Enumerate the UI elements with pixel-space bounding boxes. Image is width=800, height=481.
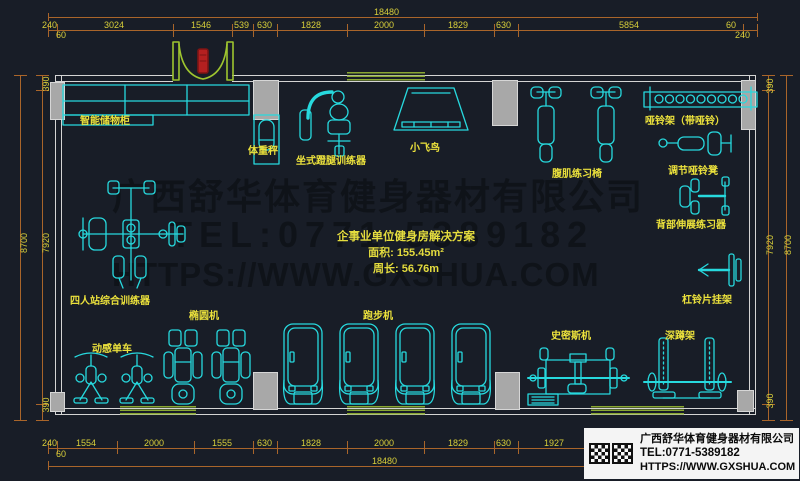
company-name: 广西舒华体育健身器材有限公司 [640, 433, 795, 447]
dim-line-top-segments [48, 30, 757, 31]
dim-top-7: 1829 [448, 20, 468, 30]
elliptical-icon [210, 328, 252, 408]
dim-tick [277, 441, 278, 454]
dim-top-6: 2000 [374, 20, 394, 30]
dim-tick [253, 24, 254, 37]
dim-right-390-bottom: 390 [765, 384, 775, 418]
dim-tick [14, 420, 27, 421]
label-plate-rack: 杠铃片挂架 [682, 291, 732, 306]
company-info-box: 广西舒华体育健身器材有限公司 TEL:0771-5389182 HTTPS://… [584, 428, 799, 479]
dim-top-8: 630 [496, 20, 511, 30]
label-dumbbell-rack: 哑铃架（带哑铃） [645, 112, 725, 127]
dim-tick [518, 441, 519, 454]
dim-bottom-total: 18480 [372, 456, 397, 466]
label-ab-bench: 腹肌练习椅 [552, 165, 602, 180]
solution-area: 面积: 155.45m² [300, 244, 512, 260]
dim-bottom-minor: 60 [56, 449, 66, 459]
dim-tick [424, 24, 425, 37]
dim-bottom-7: 1829 [448, 438, 468, 448]
dim-left-7920: 7920 [41, 226, 51, 260]
dim-tick [14, 75, 27, 76]
company-tel: TEL:0771-5389182 [640, 446, 795, 460]
column [495, 372, 520, 410]
seated-leg-press-icon [298, 84, 358, 158]
dim-bottom-5: 1828 [301, 438, 321, 448]
dim-top-minor-right: 240 [735, 30, 750, 40]
qr-code-icon [589, 443, 610, 464]
dim-top-total: 18480 [374, 7, 399, 17]
dim-right-7920: 7920 [765, 228, 775, 262]
ab-bench-icon [528, 84, 564, 168]
squat-rack-icon [643, 336, 733, 404]
dim-right-8700: 8700 [783, 228, 793, 262]
column [492, 80, 518, 126]
dim-tick [347, 24, 348, 37]
solution-text-block: 企事业单位健身房解决方案 面积: 155.45m² 周长: 56.76m [300, 228, 512, 276]
spin-bike-icon [116, 348, 158, 406]
elliptical-icon [162, 328, 204, 408]
dim-top-minor-left: 60 [56, 30, 66, 40]
treadmill-icon [394, 322, 438, 410]
dim-tick [780, 75, 793, 76]
double-door-icon [166, 40, 240, 84]
ab-bench-icon [588, 84, 624, 168]
label-leg-press: 坐式蹬腿训练器 [296, 152, 366, 167]
label-spin-bike: 动感单车 [92, 340, 132, 355]
label-back-extension: 背部伸展练习器 [656, 216, 726, 231]
solution-perimeter: 周长: 56.76m [300, 260, 512, 276]
treadmill-icon [338, 322, 382, 410]
fly-machine-icon [392, 84, 470, 136]
dim-top-5: 1828 [301, 20, 321, 30]
wall-top-left [55, 75, 173, 82]
dim-top-3: 539 [234, 20, 249, 30]
plate-rack-icon [696, 250, 742, 288]
label-adjustable-bench: 调节哑铃凳 [668, 162, 718, 177]
dim-bottom-4: 630 [257, 438, 272, 448]
dim-top-10: 60 [726, 20, 736, 30]
label-smart-locker: 智能储物柜 [80, 112, 130, 127]
dim-bottom-0: 240 [42, 438, 57, 448]
dim-tick [518, 24, 519, 37]
dim-left-8700: 8700 [19, 226, 29, 260]
dim-tick [277, 24, 278, 37]
label-weight-scale: 体重秤 [248, 142, 278, 157]
column [737, 390, 754, 412]
dim-tick [494, 24, 495, 37]
four-station-trainer-icon [75, 176, 191, 290]
dim-left-390-top: 390 [41, 67, 51, 101]
company-url: HTTPS://WWW.GXSHUA.COM [640, 461, 795, 475]
dim-tick [424, 441, 425, 454]
dim-bottom-3: 1555 [212, 438, 232, 448]
dim-bottom-8: 630 [496, 438, 511, 448]
label-treadmill: 跑步机 [363, 307, 393, 322]
dim-tick [194, 441, 195, 454]
weight-scale-icon [253, 114, 281, 166]
dim-tick [253, 441, 254, 454]
treadmill-icon [450, 322, 494, 410]
dim-tick [173, 24, 174, 37]
dim-tick [347, 441, 348, 454]
dim-bottom-1: 1554 [76, 438, 96, 448]
dumbbell-rack-icon [643, 86, 759, 112]
dim-tick [762, 420, 775, 421]
smith-machine-icon [526, 342, 632, 408]
qr-code-group [588, 442, 634, 465]
wall-left [55, 75, 62, 415]
label-elliptical: 椭圆机 [189, 307, 219, 322]
dim-top-0: 240 [42, 20, 57, 30]
dim-line-top-total [48, 17, 757, 18]
dim-bottom-6: 2000 [374, 438, 394, 448]
window-top [347, 72, 425, 83]
spin-bike-icon [70, 348, 112, 406]
adjustable-bench-icon [656, 128, 736, 158]
dim-top-2: 1546 [191, 20, 211, 30]
column [253, 372, 278, 410]
dim-tick [232, 24, 233, 37]
dim-tick [48, 461, 49, 470]
label-squat-rack: 深蹲架 [665, 327, 695, 342]
dim-tick [757, 24, 758, 37]
dim-right-390-top: 390 [765, 69, 775, 103]
back-extension-icon [678, 176, 738, 216]
dim-top-9: 5854 [619, 20, 639, 30]
dim-tick [117, 441, 118, 454]
dim-top-4: 630 [257, 20, 272, 30]
dim-tick [494, 441, 495, 454]
label-smith-machine: 史密斯机 [551, 327, 591, 342]
column [50, 392, 65, 412]
cad-floor-plan: { "watermark": { "company": "广西舒华体育健身器材有… [0, 0, 800, 481]
dim-tick [757, 13, 758, 21]
dim-bottom-2: 2000 [144, 438, 164, 448]
company-info-text: 广西舒华体育健身器材有限公司 TEL:0771-5389182 HTTPS://… [640, 433, 795, 475]
dim-tick [780, 420, 793, 421]
treadmill-icon [282, 322, 326, 410]
qr-code-icon [612, 443, 633, 464]
dim-bottom-9: 1927 [544, 438, 564, 448]
dim-left-390-bottom: 390 [41, 388, 51, 422]
dim-top-1: 3024 [104, 20, 124, 30]
label-four-station: 四人站综合训练器 [70, 292, 150, 307]
label-fly-machine: 小飞鸟 [410, 139, 440, 154]
solution-title: 企事业单位健身房解决方案 [300, 228, 512, 244]
